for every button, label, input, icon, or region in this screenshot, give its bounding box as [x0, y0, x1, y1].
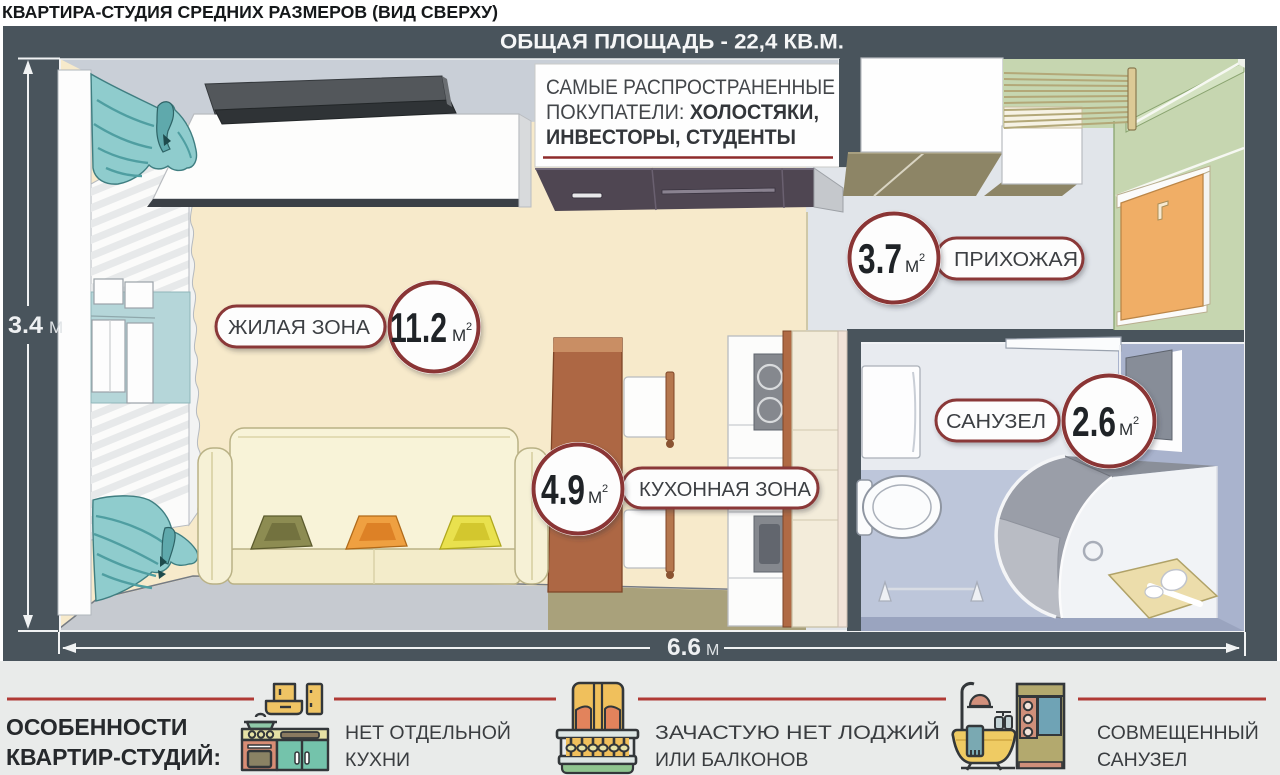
svg-text:М: М [588, 488, 602, 507]
svg-text:М: М [49, 318, 63, 337]
svg-text:3.4: 3.4 [8, 312, 44, 339]
svg-text:ПРИХОЖАЯ: ПРИХОЖАЯ [954, 249, 1078, 271]
svg-text:2.6: 2.6 [1072, 398, 1116, 445]
svg-text:ИНВЕСТОРЫ, СТУДЕНТЫ: ИНВЕСТОРЫ, СТУДЕНТЫ [546, 125, 796, 149]
svg-text:М: М [706, 642, 719, 659]
svg-text:6.6: 6.6 [667, 634, 701, 661]
svg-text:САМЫЕ РАСПРОСТРАНЕННЫЕ: САМЫЕ РАСПРОСТРАНЕННЫЕ [546, 75, 835, 99]
svg-text:КВАРТИР-СТУДИЙ:: КВАРТИР-СТУДИЙ: [6, 743, 221, 770]
svg-text:СОВМЕЩЕННЫЙ: СОВМЕЩЕННЫЙ [1097, 720, 1259, 744]
svg-text:ЗАЧАСТУЮ НЕТ ЛОДЖИЙ: ЗАЧАСТУЮ НЕТ ЛОДЖИЙ [655, 720, 940, 744]
svg-text:2: 2 [1133, 415, 1139, 427]
svg-text:КУХОННАЯ ЗОНА: КУХОННАЯ ЗОНА [639, 479, 812, 501]
svg-text:М: М [452, 326, 466, 345]
svg-text:М: М [1119, 420, 1133, 439]
svg-text:ОСОБЕННОСТИ: ОСОБЕННОСТИ [6, 714, 187, 740]
svg-text:2: 2 [466, 321, 472, 333]
svg-text:ЖИЛАЯ ЗОНА: ЖИЛАЯ ЗОНА [228, 317, 371, 339]
svg-text:2: 2 [919, 252, 925, 264]
svg-text:ОБЩАЯ ПЛОЩАДЬ - 22,4 КВ.М.: ОБЩАЯ ПЛОЩАДЬ - 22,4 КВ.М. [500, 30, 844, 54]
svg-text:М: М [905, 257, 919, 276]
svg-text:ИЛИ БАЛКОНОВ: ИЛИ БАЛКОНОВ [655, 749, 808, 771]
svg-text:4.9: 4.9 [541, 466, 585, 513]
svg-text:НЕТ ОТДЕЛЬНОЙ: НЕТ ОТДЕЛЬНОЙ [345, 720, 511, 744]
svg-text:КВАРТИРА-СТУДИЯ СРЕДНИХ РАЗМЕР: КВАРТИРА-СТУДИЯ СРЕДНИХ РАЗМЕРОВ (ВИД СВ… [2, 2, 498, 22]
svg-text:ПОКУПАТЕЛИ: ХОЛОСТЯКИ,: ПОКУПАТЕЛИ: ХОЛОСТЯКИ, [546, 100, 819, 124]
svg-text:САНУЗЕЛ: САНУЗЕЛ [946, 411, 1046, 433]
svg-text:3.7: 3.7 [858, 235, 902, 282]
svg-text:КУХНИ: КУХНИ [345, 749, 410, 771]
svg-text:САНУЗЕЛ: САНУЗЕЛ [1097, 749, 1187, 771]
svg-text:2: 2 [602, 483, 608, 495]
svg-text:11.2: 11.2 [390, 304, 447, 351]
